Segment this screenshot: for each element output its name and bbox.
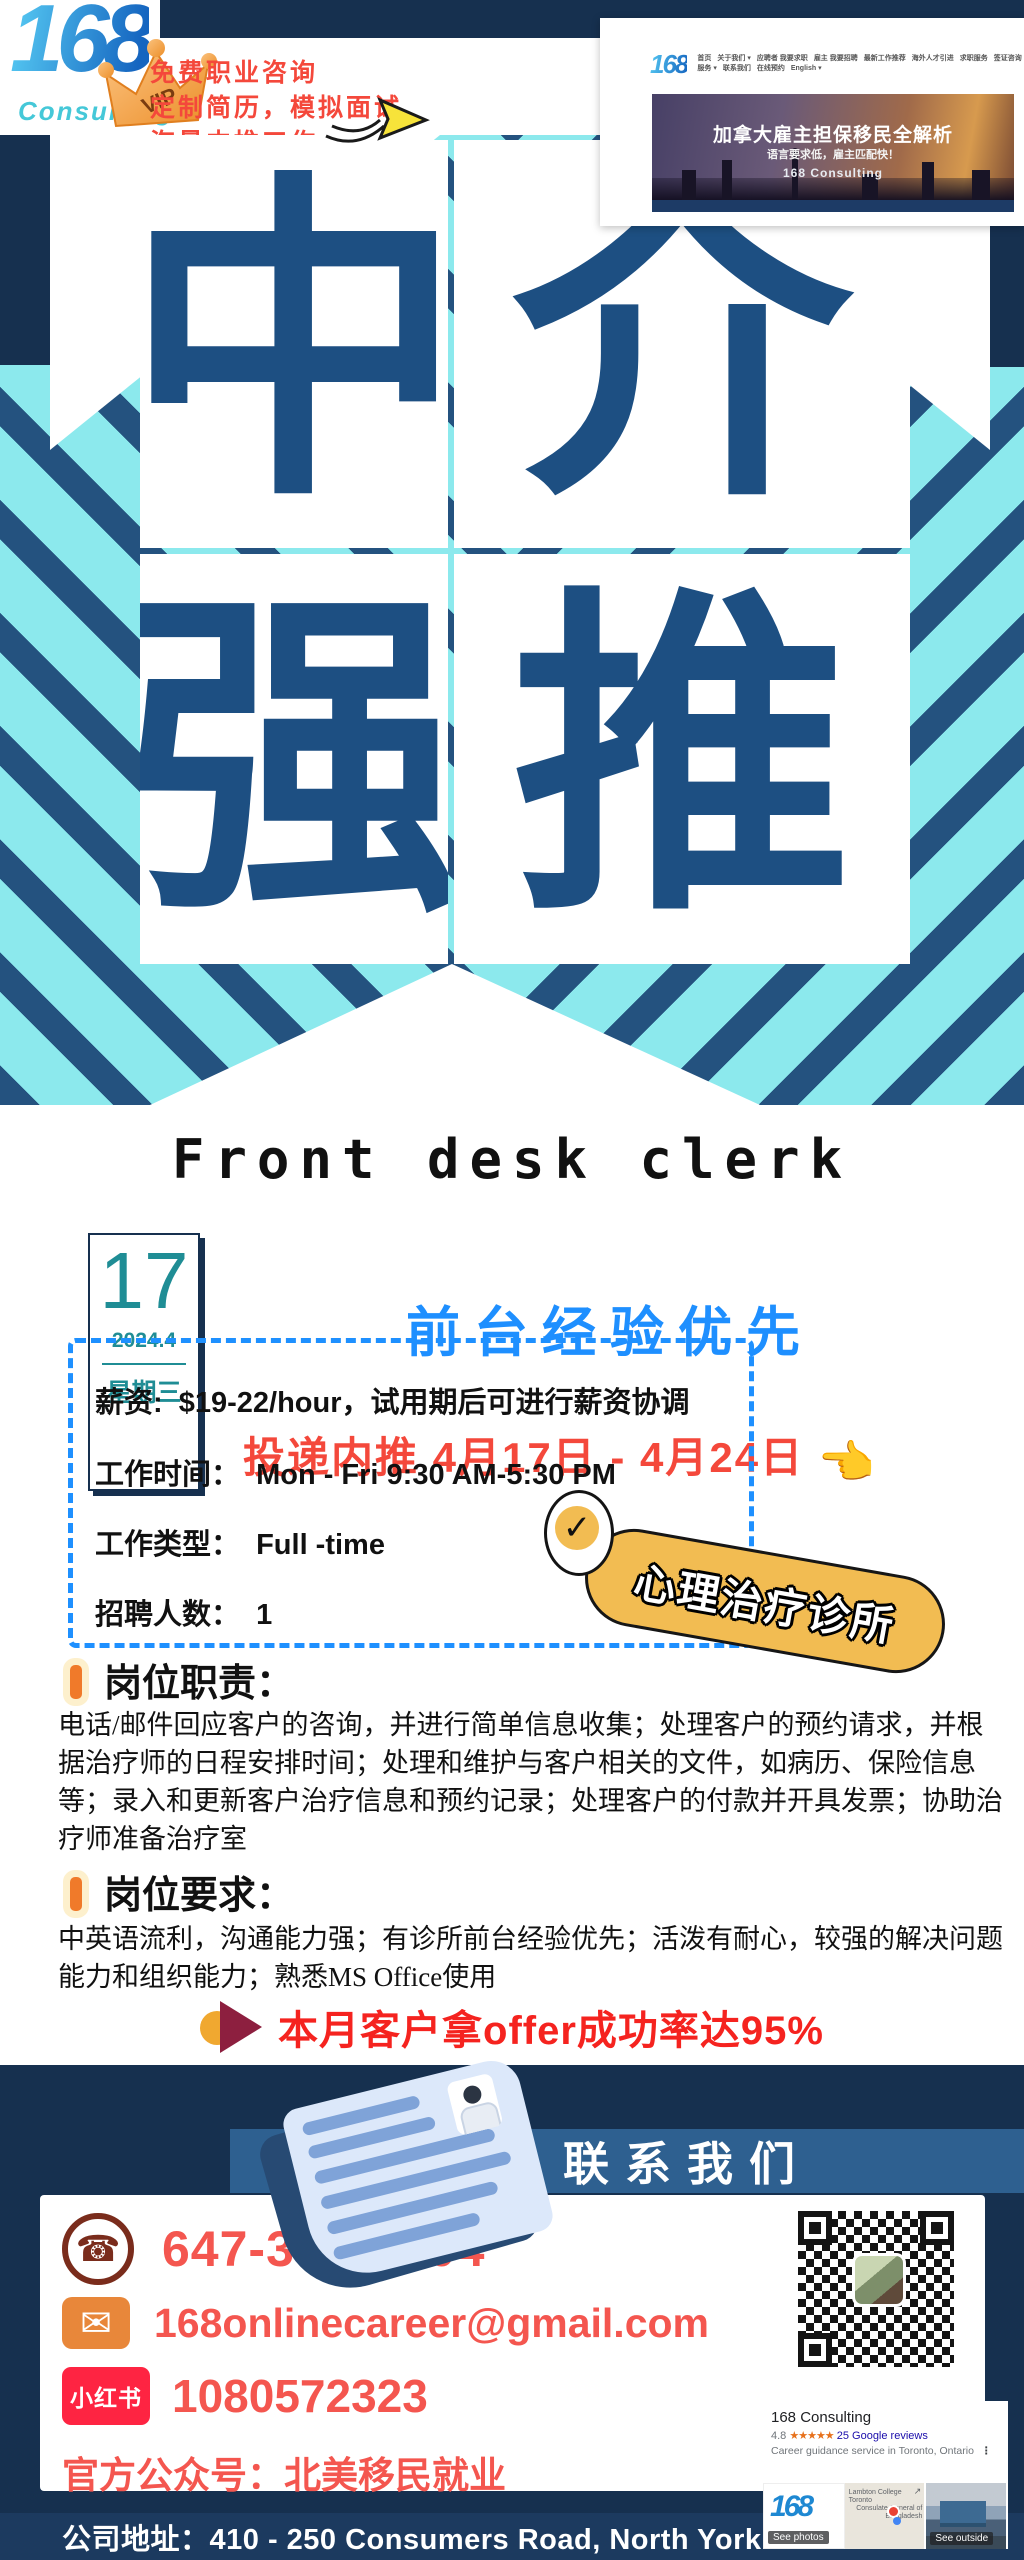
qr-code-panel xyxy=(790,2203,962,2375)
website-screenshot: 168 首页关于我们 ▾应聘者 我要求职雇主 我要招聘最新工作推荐海外人才引进求… xyxy=(600,18,1024,226)
detail-value: Mon - Fri 9:30 AM-5:30 PM xyxy=(256,1459,616,1491)
business-name: 168 Consulting xyxy=(771,2409,1000,2426)
see-photos-label: See photos xyxy=(768,2531,829,2544)
pointing-hand-icon: 👈 xyxy=(818,1436,877,1488)
website-nav-items: 首页关于我们 ▾应聘者 我要求职雇主 我要招聘最新工作推荐海外人才引进求职服务签… xyxy=(697,54,1024,74)
responsibilities-header: 岗位职责： xyxy=(70,1652,294,1707)
email-icon: ✉ xyxy=(62,2297,130,2349)
more-options-icon: ⋮ xyxy=(981,2445,992,2457)
detail-row-type: 工作类型： Full -time xyxy=(95,1521,385,1563)
skyline-silhouette xyxy=(652,178,1014,200)
rating-row: 4.8 ★★★★★ 25 Google reviews xyxy=(771,2429,1000,2442)
detail-label: 薪资: xyxy=(95,1387,163,1419)
date-day: 17 xyxy=(90,1235,198,1327)
hero-brand: 168 Consulting xyxy=(652,166,1014,180)
street-view-thumbnail: See outside xyxy=(926,2483,1008,2549)
clinic-badge: 心理治疗诊所 xyxy=(577,1521,952,1681)
check-icon: ✓ xyxy=(555,1506,599,1550)
map-thumbnail: Lambton College Toronto Consulate Genera… xyxy=(845,2483,927,2549)
hero-subtitle: 语言要求低，雇主匹配快！ xyxy=(652,146,1014,162)
doodle-arrow-icon xyxy=(322,78,432,148)
requirements-title: 岗位要求： xyxy=(104,1864,294,1919)
xiaohongshu-icon: 小红书 xyxy=(62,2367,150,2425)
hero-title: 加拿大雇主担保移民全解析 xyxy=(652,120,1014,147)
detail-label: 工作时间： xyxy=(95,1459,240,1491)
resume-illustration xyxy=(268,2073,588,2268)
website-section-strip xyxy=(652,200,1014,212)
contact-banner-text: 联系我们 xyxy=(563,2128,811,2194)
business-category: Career guidance service in Toronto, Onta… xyxy=(771,2445,1000,2457)
map-dot-icon xyxy=(893,2517,901,2525)
offer-success-line: 本月客户拿offer成功率达95% xyxy=(0,1998,1024,2056)
phone-icon: ☎ xyxy=(62,2213,134,2285)
reviews-link: 25 Google reviews xyxy=(837,2430,928,2442)
qr-center-avatar xyxy=(852,2253,906,2307)
banner-char-card-4: 推 xyxy=(454,554,910,964)
banner-char-1: 中 xyxy=(140,174,448,514)
banner-char-card-1: 中 xyxy=(140,140,448,548)
detail-label: 招聘人数： xyxy=(95,1599,240,1631)
map-label-consulate: Consulate General of Bangladesh xyxy=(845,2505,923,2521)
job-poster: 168 Consulting VIP 免费职业咨询 定制简历，模拟面试 海量内推… xyxy=(0,0,1024,2560)
website-logo: 168 xyxy=(650,49,687,80)
footer: 联系我们 ☎ 647-349-8804 ✉ xyxy=(0,2065,1024,2560)
exclamation-icon xyxy=(70,1665,82,1699)
detail-label: 工作类型： xyxy=(95,1529,240,1561)
banner-char-3: 强 xyxy=(140,589,448,929)
dark-bar-left xyxy=(0,135,50,365)
photos-thumbnail: 168 See photos xyxy=(763,2483,845,2549)
business-thumbnails: 168 See photos Lambton College Toronto C… xyxy=(763,2483,1008,2549)
rating-value: 4.8 xyxy=(771,2430,786,2442)
detail-row-hours: 工作时间： Mon - Fri 9:30 AM-5:30 PM xyxy=(95,1451,616,1493)
offer-success-text: 本月客户拿offer成功率达95% xyxy=(278,1998,824,2056)
wechat-official-account: 官方公众号：北美移民就业 xyxy=(62,2445,506,2499)
detail-value: Full -time xyxy=(256,1529,385,1561)
website-navbar: 168 首页关于我们 ▾应聘者 我要求职雇主 我要招聘最新工作推荐海外人才引进求… xyxy=(600,42,1024,86)
requirements-header: 岗位要求： xyxy=(70,1864,294,1919)
resume-paper xyxy=(280,2055,556,2286)
dark-bar-right xyxy=(990,211,1024,367)
job-title: Front desk clerk xyxy=(0,1128,1024,1191)
exclamation-icon xyxy=(70,1877,82,1911)
email-row: ✉ 168onlinecareer@gmail.com xyxy=(62,2297,709,2349)
requirements-text: 中英语流利，沟通能力强；有诊所前台经验优先；活泼有耐心，较强的解决问题能力和组织… xyxy=(58,1920,1004,1996)
check-badge: ✓ xyxy=(544,1490,614,1576)
banner-char-card-3: 强 xyxy=(140,554,448,964)
xiaohongshu-row: 小红书 1080572323 xyxy=(62,2367,428,2425)
company-address: 公司地址：410 - 250 Consumers Road, North Yor… xyxy=(62,2516,761,2558)
xiaohongshu-id: 1080572323 xyxy=(172,2369,428,2423)
banner-char-4: 推 xyxy=(512,589,852,929)
star-rating-icon: ★★★★★ xyxy=(789,2430,833,2442)
detail-row-salary: 薪资: $19-22/hour，试用期后可进行薪资协调 xyxy=(95,1379,690,1421)
responsibilities-text: 电话/邮件回应客户的咨询，并进行简单信息收集；处理客户的预约请求，并根据治疗师的… xyxy=(58,1706,1004,1858)
detail-value: $19-22/hour，试用期后可进行薪资协调 xyxy=(179,1387,690,1419)
play-arrow-icon xyxy=(200,2001,264,2053)
responsibilities-title: 岗位职责： xyxy=(104,1652,294,1707)
qr-code xyxy=(798,2211,954,2367)
see-outside-label: See outside xyxy=(930,2532,993,2545)
map-pin-icon xyxy=(887,2505,900,2518)
google-business-card: 168 Consulting 4.8 ★★★★★ 25 Google revie… xyxy=(763,2401,1008,2549)
expand-icon: ↗ xyxy=(914,2486,922,2497)
mini-logo: 168 xyxy=(770,2490,811,2524)
website-hero-image: 加拿大雇主担保移民全解析 语言要求低，雇主匹配快！ 168 Consulting xyxy=(652,94,1014,200)
resume-avatar xyxy=(446,2073,504,2137)
striped-banner: 中 介 强 推 xyxy=(0,135,1024,1105)
email-address: 168onlinecareer@gmail.com xyxy=(154,2300,709,2347)
detail-row-headcount: 招聘人数： 1 xyxy=(95,1591,272,1633)
detail-value: 1 xyxy=(256,1599,272,1631)
